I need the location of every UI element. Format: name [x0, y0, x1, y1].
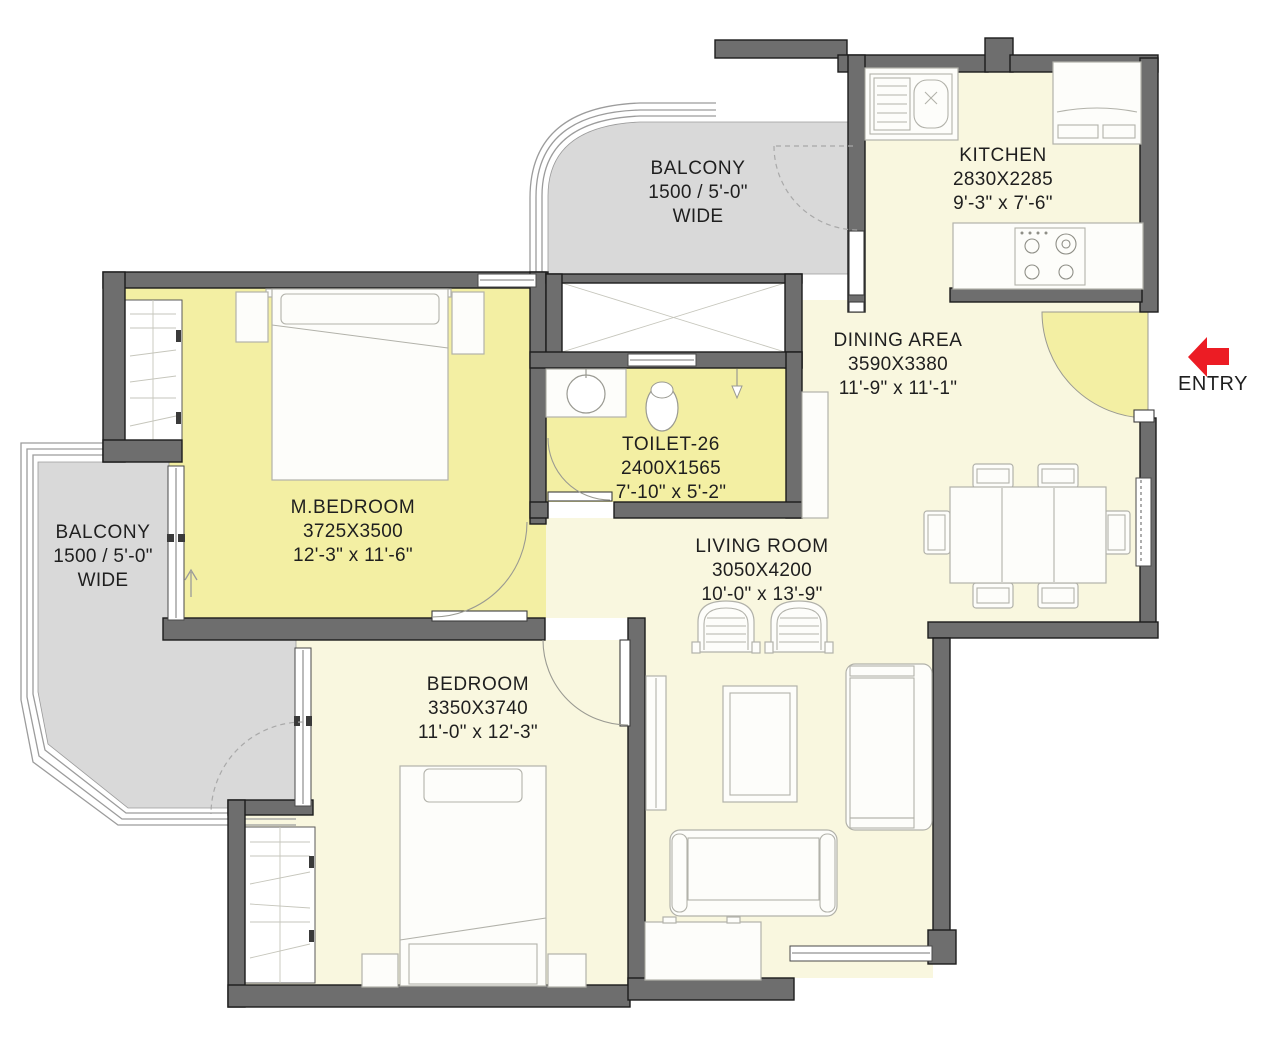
side-table [452, 292, 484, 354]
wall-toilet-right [786, 352, 802, 518]
bedroom-door-leaf [620, 640, 630, 726]
wall-kitchen-step [985, 38, 1013, 72]
wall-toilet-bottom-left [530, 502, 548, 518]
sofa-right [846, 664, 932, 830]
kitchen-fridge [1053, 62, 1141, 144]
entry-arrow-icon [1188, 337, 1229, 377]
kitchen-sink [865, 68, 958, 140]
wall-living-right [933, 638, 950, 938]
bedroom-wardrobe [245, 827, 315, 983]
wall-living-bottom [628, 978, 794, 1000]
wall-end-cap [849, 302, 864, 312]
living-label: LIVING ROOM 3050X4200 10'-0" x 13'-9" [695, 535, 828, 607]
bedroom-label: BEDROOM 3350X3740 11'-0" x 12'-3" [418, 673, 538, 745]
wall-kitchen-dining [950, 288, 1142, 302]
wall-bedroom-left [228, 800, 245, 1007]
floor-plan-canvas [0, 0, 1281, 1061]
floor-plan: BALCONY 1500 / 5'-0" WIDE KITCHEN 2830X2… [0, 0, 1281, 1061]
wall-mbedroom-left [103, 272, 125, 462]
wall-mbedroom-right [530, 272, 546, 524]
sofa-bottom [670, 830, 837, 916]
entry-label: ENTRY [1178, 373, 1248, 396]
wall-bedroom-bottom [228, 985, 630, 1007]
kitchen-balcony-door-leaf [849, 231, 864, 295]
wicker-chair [765, 601, 833, 653]
side-table [548, 954, 586, 987]
wicker-chair [692, 601, 760, 653]
kitchen-hob [953, 223, 1143, 289]
window-dining [1136, 478, 1151, 566]
entry-door-leaf [1134, 410, 1154, 422]
dining-table [950, 487, 1106, 583]
wall-top-balcony [715, 40, 847, 58]
wall-shaft-top [546, 274, 802, 283]
mbedroom-wardrobe [125, 300, 182, 440]
utility-cabinet [802, 392, 828, 518]
wash-basin [567, 375, 605, 413]
mbedroom-label: M.BEDROOM 3725X3500 12'-3" x 11'-6" [291, 496, 416, 568]
kitchen-label: KITCHEN 2830X2285 9'-3" x 7'-6" [953, 144, 1053, 216]
wall-nook-bottom [103, 440, 182, 462]
side-table [236, 292, 268, 342]
tv-unit [645, 917, 761, 980]
corridor-floor [546, 518, 645, 618]
mbedroom-bed [236, 289, 484, 480]
duct-shaft [562, 283, 785, 352]
coffee-table [723, 686, 797, 802]
side-table [362, 954, 398, 987]
wall-dining-bottom [928, 622, 1158, 638]
dining-label: DINING AREA 3590X3380 11'-9" x 11'-1" [833, 329, 962, 401]
balcony-top-label: BALCONY 1500 / 5'-0" WIDE [648, 157, 748, 229]
balcony-left-label: BALCONY 1500 / 5'-0" WIDE [53, 521, 153, 593]
toilet-label: TOILET-26 2400X1565 7'-10" x 5'-2" [616, 433, 727, 505]
